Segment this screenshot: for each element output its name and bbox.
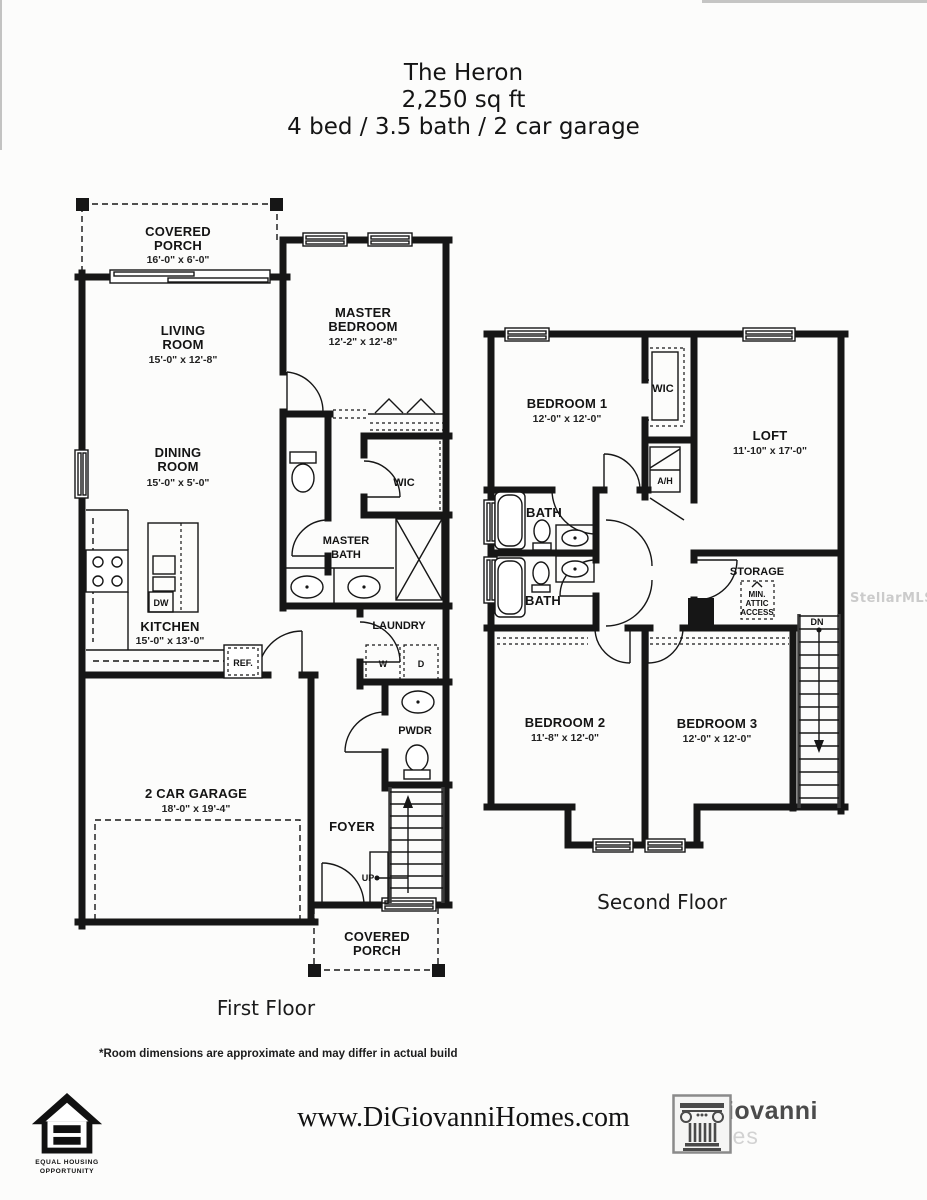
label-living-1: LIVING [161,323,206,338]
label-dining-1: DINING [155,445,202,460]
label-master-bath-2: BATH [331,549,361,561]
stellar-mls-watermark: StellarMLS [850,591,927,606]
dims-garage: 18'-0" x 19'-4" [162,803,231,815]
builder-logo: DiGiovanni Homes [672,1094,818,1148]
master-closet [333,399,446,430]
label-attic-1: MIN. [749,590,766,599]
toilet-icon [290,452,316,492]
label-dn: DN [811,617,824,627]
scan-artifact [702,0,927,3]
fridge-icon: REF. [224,645,262,678]
stairs-up [370,787,443,903]
label-kitchen: KITCHEN [140,619,199,634]
second-floor-plan: BEDROOM 1 12'-0" x 12'-0" WIC LOFT 11'-1… [470,315,860,870]
label-living-2: ROOM [162,337,203,352]
dims-kitchen: 15'-0" x 13'-0" [136,635,205,647]
label-ah: A/H [657,476,673,486]
label-bath1: BATH [526,505,562,520]
garage-door-outline [95,820,300,920]
label-bedroom3: BEDROOM 3 [677,716,758,731]
window-icon [75,233,436,911]
label-bedroom2: BEDROOM 2 [525,715,606,730]
label-storage: STORAGE [730,566,784,578]
dims-master-bedroom: 12'-2" x 12'-8" [329,336,398,348]
dims-bedroom2: 11'-8" x 12'-0" [531,732,599,744]
first-floor-plan: DW REF. W D [60,190,470,990]
label-porch-top-2: PORCH [154,238,202,253]
equal-housing-text-1: EQUAL HOUSING [35,1159,98,1166]
label-attic-2: ATTIC [746,599,769,608]
second-floor-caption: Second Floor [552,890,772,914]
dims-loft: 11'-10" x 17'-0" [733,445,807,457]
washer-dryer-icons: W D [366,645,438,681]
label-wic2: WIC [652,383,673,395]
column-icon [672,1094,732,1154]
plan-specs: 4 bed / 3.5 bath / 2 car garage [0,114,927,141]
dimensions-footnote: *Room dimensions are approximate and may… [99,1048,458,1060]
label-wic: WIC [393,477,414,489]
label-foyer: FOYER [329,819,375,834]
floor-plan-sheet: The Heron 2,250 sq ft 4 bed / 3.5 bath /… [0,0,927,1200]
label-porch-top-1: COVERED [145,224,211,239]
equal-housing-text-2: OPPORTUNITY [40,1168,94,1175]
label-attic-3: ACCESS [740,608,774,617]
label-garage: 2 CAR GARAGE [145,786,247,801]
shower-icon [396,519,442,600]
label-pwdr: PWDR [398,725,432,737]
label-dining-2: ROOM [157,459,198,474]
plan-sqft: 2,250 sq ft [0,87,927,114]
first-floor-caption: First Floor [156,996,376,1020]
label-loft: LOFT [753,428,788,443]
label-master-bath-1: MASTER [323,535,370,547]
plan-name: The Heron [0,60,927,87]
kitchen-island: DW [148,523,198,612]
label-bath2: BATH [525,593,561,608]
vanity-sinks [283,568,394,604]
dims-bedroom3: 12'-0" x 12'-0" [683,733,752,745]
label-laundry: LAUNDRY [372,620,426,632]
dims-bedroom1: 12'-0" x 12'-0" [533,413,602,425]
stairs-down [799,614,839,808]
label-porch-bottom-1: COVERED [344,929,410,944]
label-master-bedroom-2: BEDROOM [328,319,397,334]
fridge-label: REF. [233,658,253,668]
dishwasher-label: DW [154,598,169,608]
dryer-label: D [418,659,425,669]
label-bedroom1: BEDROOM 1 [527,396,608,411]
plan-title: The Heron 2,250 sq ft 4 bed / 3.5 bath /… [0,60,927,141]
washer-label: W [379,659,388,669]
dims-dining: 15'-0" x 5'-0" [147,477,210,489]
dims-porch-top: 16'-0" x 6'-0" [147,254,210,266]
label-master-bedroom-1: MASTER [335,305,392,320]
label-up: UP [362,873,375,883]
label-porch-bottom-2: PORCH [353,943,401,958]
dims-living: 15'-0" x 12'-8" [149,354,218,366]
